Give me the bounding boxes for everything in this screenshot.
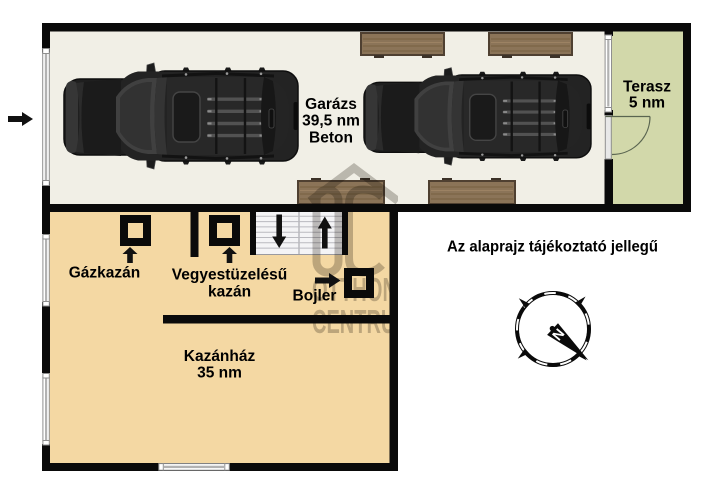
svg-text:Garázs: Garázs: [305, 96, 357, 113]
svg-text:Kazánház: Kazánház: [184, 348, 256, 365]
svg-text:Terasz: Terasz: [623, 79, 671, 96]
svg-text:35 nm: 35 nm: [197, 364, 242, 381]
svg-text:39,5 nm: 39,5 nm: [302, 113, 360, 130]
svg-text:Gázkazán: Gázkazán: [69, 265, 141, 282]
svg-text:Bojler: Bojler: [293, 288, 337, 305]
svg-text:5 nm: 5 nm: [629, 95, 665, 112]
svg-text:kazán: kazán: [208, 284, 251, 301]
svg-text:Beton: Beton: [309, 130, 353, 147]
svg-text:Vegyestüzelésű: Vegyestüzelésű: [172, 267, 287, 284]
svg-text:Az alaprajz tájékoztató jelleg: Az alaprajz tájékoztató jellegű: [447, 239, 658, 256]
